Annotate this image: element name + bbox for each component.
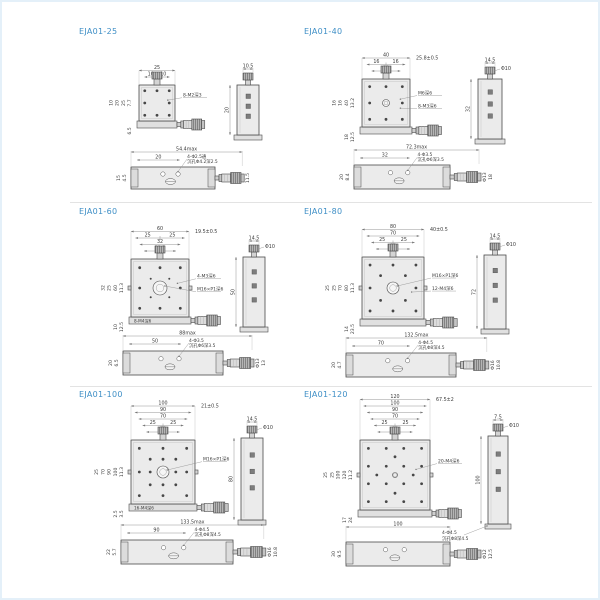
dim-label: 20 (115, 100, 121, 106)
dim-label: 10.8 (496, 360, 502, 370)
thread-note: 8-M3深6 (418, 102, 437, 109)
micrometer-drawing (191, 315, 220, 326)
dim-label: 24 (348, 517, 354, 523)
dim-label: 7.5 (494, 414, 502, 420)
micrometer-drawing (197, 502, 228, 513)
dim-label: Φ12 (482, 549, 488, 559)
dim-label: 10.5 (243, 63, 254, 69)
dim-label: 90 (392, 407, 398, 413)
dim-label: 40 (383, 53, 389, 59)
micrometer-drawing (177, 119, 205, 130)
dim-label: 70 (160, 414, 166, 420)
dim-label: 67.5±2 (436, 397, 454, 403)
dim-label: 90 (160, 407, 166, 413)
drawing-canvas: 120100907025255567.5±211.212010025252417… (300, 390, 550, 578)
thread-note: 16-M4深6 (134, 504, 154, 511)
side-view: 14.5Φ1050 (231, 235, 275, 332)
drawing-canvas: 807025255540±0.511.38070252523.514M16×P1… (300, 207, 550, 385)
dim-label: 11.2 (348, 470, 354, 480)
hole-note: 4-Φ4.5 (418, 340, 433, 346)
dim-label: 25 (323, 472, 329, 478)
dim-label: 20 (331, 362, 337, 368)
plan-view: 120100907025255567.5±211.212010025252417… (323, 394, 462, 523)
dim-label: Φ10 (506, 242, 516, 248)
panel-eja01-120: EJA01-120 120100907025255567.5±211.21201… (300, 390, 550, 578)
dim-label: 100 (158, 401, 167, 407)
panel-eja01-100: EJA01-100 100907025257521±0.511.31009070… (75, 390, 290, 578)
dim-label: 16 (331, 100, 337, 106)
dim-label: 25 (331, 285, 337, 291)
hole-note: 沉孔Φ4.2深2.5 (187, 158, 218, 165)
dim-label: Φ16 (490, 360, 496, 370)
bottom-view: 132.5max704-Φ4.5沉孔Φ8深4.54.720Φ1610.8 (331, 333, 502, 377)
side-view: 10.520 (225, 63, 263, 140)
dim-label: 14.5 (247, 416, 258, 422)
dim-label: 60 (113, 285, 119, 291)
dim-label: 10 (108, 100, 114, 106)
thread-note: 4-M3深6 (197, 273, 216, 280)
hole-note: 4-Φ4.5 (194, 527, 209, 533)
side-view: 14.5Φ1032 (466, 57, 511, 144)
dim-label: 30 (331, 551, 337, 557)
dim-label: 25 (402, 420, 408, 426)
dim-label: 25 (150, 420, 156, 426)
dim-label: 16 (338, 100, 344, 106)
dim-label: 120 (390, 394, 399, 400)
dim-label: 10.8 (273, 547, 279, 557)
dim-label: 12.5 (350, 132, 356, 142)
dim-label: 70 (390, 231, 396, 237)
dim-label: 4.7 (337, 361, 343, 368)
hole-note: 4-Φ3.5 (418, 152, 433, 158)
micrometer-drawing (432, 508, 461, 519)
drawing-canvas: 4016162825.8±0.513.240161612.518M6深68-M3… (300, 27, 550, 200)
dim-label: 100 (336, 471, 342, 480)
dim-label: 72 (472, 289, 478, 295)
dim-label: 14.5 (249, 235, 260, 241)
dim-label: 32 (466, 106, 472, 112)
micrometer-drawing (450, 172, 481, 183)
catalog-page: { "page": { "accent_color": "#3f8fc6", "… (0, 0, 600, 600)
hole-note: 4-Φ3.5 (189, 338, 204, 344)
dim-label: 12.5 (119, 322, 125, 332)
micrometer-drawing (412, 125, 441, 136)
panel-eja01-25: EJA01-25 2510107.72520106.58-M2深310.5205… (75, 27, 290, 200)
dim-label: 9.5 (337, 550, 343, 557)
thread-note: 8-M4深6 (134, 317, 152, 324)
micrometer-drawing (456, 360, 489, 371)
dim-label: 17 (342, 517, 348, 523)
dim-label: 11.3 (350, 283, 356, 293)
dim-label: 25 (94, 469, 100, 475)
dim-label: 100 (393, 522, 402, 528)
dim-label: Φ10 (265, 244, 275, 250)
dim-label: 100 (113, 468, 119, 477)
dim-label: 50 (231, 289, 237, 295)
dim-label: 14 (344, 326, 350, 332)
dim-label: 40 (344, 100, 350, 106)
plan-view: 2510107.72520106.58-M2深3 (108, 65, 207, 135)
dim-label: Φ16 (267, 547, 273, 557)
micrometer-drawing (233, 547, 266, 558)
dim-label: 10 (113, 324, 119, 330)
dim-label: 14.5 (485, 57, 496, 63)
dim-label: 132.5max (404, 333, 428, 339)
thread-note: 20-M4深6 (438, 457, 460, 464)
dim-label: 80 (390, 224, 396, 230)
dim-label: 20 (155, 155, 161, 161)
dim-label: 25 (329, 472, 335, 478)
dim-label: Φ10 (509, 423, 519, 429)
dim-label: 25.8±0.5 (416, 56, 438, 62)
dim-label: 8.4 (345, 173, 351, 180)
dim-label: 14.5 (490, 233, 501, 239)
thread-note: 8-M2深3 (183, 92, 202, 99)
dim-label: 80 (229, 476, 235, 482)
dim-label: 11.5 (245, 173, 251, 183)
plan-view: 6025253232.519.5±0.511.360253212.5104-M3… (100, 226, 223, 332)
dim-label: 13.2 (350, 98, 356, 108)
dim-label: 100 (476, 475, 482, 484)
micrometer-drawing (215, 173, 244, 184)
dim-label: 70 (338, 285, 344, 291)
dim-label: 60 (157, 226, 163, 232)
hole-note: 沉孔Φ8深4.5 (418, 344, 445, 351)
thread-note: 12-M4深6 (432, 285, 454, 292)
panel-eja01-40: EJA01-40 4016162825.8±0.513.240161612.51… (300, 27, 550, 200)
dim-label: 70 (378, 341, 384, 347)
plan-view: 807025255540±0.511.38070252523.514M16×P1… (325, 224, 458, 334)
thread-note: M16×P1深6 (203, 455, 229, 462)
dim-label: 5.7 (112, 548, 118, 555)
dim-label: 15 (116, 175, 122, 181)
dim-label: 20 (225, 107, 231, 113)
bottom-view: 88max504-Φ3.5沉孔Φ6深3.56.520Φ1313 (108, 331, 267, 375)
dim-label: 32 (100, 285, 106, 291)
dim-label: 88max (179, 331, 196, 337)
dim-label: Φ10 (263, 425, 273, 431)
dim-label: 6.5 (114, 359, 120, 366)
dim-label: 3.5 (119, 510, 125, 517)
panel-eja01-80: EJA01-80 807025255540±0.511.38070252523.… (300, 207, 550, 385)
dim-label: 25 (381, 420, 387, 426)
hole-note: 4-Φ2.5通 (187, 153, 207, 160)
side-view: 7.5Φ101004-Φ4.5沉孔Φ8深4.5 (442, 414, 519, 542)
bottom-view: 72.3max324-Φ3.5沉孔Φ6深3.58.420Φ1318 (339, 145, 494, 189)
dim-label: 54.4max (176, 147, 197, 153)
dim-label: 4.5 (122, 174, 128, 181)
dim-label: 6.5 (127, 127, 133, 134)
micrometer-drawing (426, 317, 457, 328)
dim-label: 22 (106, 549, 112, 555)
dim-label: Φ10 (501, 66, 511, 72)
dim-label: 90 (107, 469, 113, 475)
dim-label: 7.7 (127, 99, 133, 106)
dim-label: 90 (153, 528, 159, 534)
dim-label: 50 (152, 339, 158, 345)
dim-label: 25 (121, 100, 127, 106)
dim-label: 2.5 (113, 510, 119, 517)
dim-label: 25 (401, 237, 407, 243)
drawing-canvas: 2510107.72520106.58-M2深310.52054.4max204… (75, 27, 290, 200)
dim-label: 100 (390, 401, 399, 407)
thread-note: 4-Φ4.5 (442, 530, 457, 536)
dim-label: 32 (382, 153, 388, 159)
dim-label: 23.5 (350, 324, 356, 334)
row-divider (70, 202, 592, 203)
dim-label: 70 (100, 469, 106, 475)
dim-label: 18 (344, 134, 350, 140)
drawing-canvas: 100907025257521±0.511.31009070253.52.5M1… (75, 390, 290, 578)
dim-label: 11.3 (119, 467, 125, 477)
dim-label: 20 (108, 360, 114, 366)
bottom-view: 54.4max204-Φ2.5通沉孔Φ4.2深2.54.51511.5 (116, 147, 251, 189)
side-view: 14.5Φ1072 (472, 233, 516, 334)
dim-label: 40±0.5 (430, 227, 448, 233)
side-view: 14.5Φ1080 (229, 416, 273, 525)
hole-note: 沉孔Φ6深3.5 (418, 156, 445, 163)
thread-note: M16×P1深6 (432, 272, 458, 279)
bottom-view: 133.5max904-Φ4.5沉孔Φ8深4.55.722Φ1610.8 (106, 520, 279, 564)
bottom-view: 1009.530Φ1212.5 (331, 522, 494, 566)
plan-view: 4016162825.8±0.513.240161612.518M6深68-M3… (331, 53, 442, 143)
dim-label: 72.3max (406, 145, 427, 151)
thread-note: M16×P1深6 (197, 286, 223, 293)
thread-note: 沉孔Φ8深4.5 (442, 535, 469, 542)
dim-label: 25 (169, 233, 175, 239)
row-divider (70, 386, 592, 387)
thread-note: M6深6 (418, 89, 432, 96)
drawing-canvas: 6025253232.519.5±0.511.360253212.5104-M3… (75, 207, 290, 385)
micrometer-drawing (223, 358, 254, 369)
micrometer-drawing (450, 549, 481, 560)
dim-label: 25 (379, 237, 385, 243)
dim-label: 80 (344, 285, 350, 291)
dim-label: 70 (392, 414, 398, 420)
dim-label: 25 (170, 420, 176, 426)
dim-label: 13 (261, 360, 267, 366)
dim-label: Φ13 (482, 172, 488, 182)
dim-label: 120 (342, 471, 348, 480)
dim-label: 25 (325, 285, 331, 291)
dim-label: 25 (107, 285, 113, 291)
dim-label: 11.3 (119, 283, 125, 293)
dim-label: 25 (145, 233, 151, 239)
dim-label: 18 (488, 174, 494, 180)
plan-view: 100907025257521±0.511.31009070253.52.5M1… (94, 401, 229, 518)
dim-label: 20 (339, 174, 345, 180)
dim-label: 16 (393, 59, 399, 65)
dim-label: 19.5±0.5 (195, 229, 217, 235)
hole-note: 沉孔Φ8深4.5 (194, 531, 221, 538)
dim-label: 133.5max (180, 520, 204, 526)
dim-label: 12.5 (488, 549, 494, 559)
dim-label: 25 (154, 65, 160, 71)
dim-label: 16 (373, 59, 379, 65)
dim-label: Φ13 (255, 358, 261, 368)
dim-label: 21±0.5 (201, 404, 219, 410)
dim-label: 32 (157, 239, 163, 245)
panel-eja01-60: EJA01-60 6025253232.519.5±0.511.36025321… (75, 207, 290, 385)
hole-note: 沉孔Φ6深3.5 (189, 342, 216, 349)
